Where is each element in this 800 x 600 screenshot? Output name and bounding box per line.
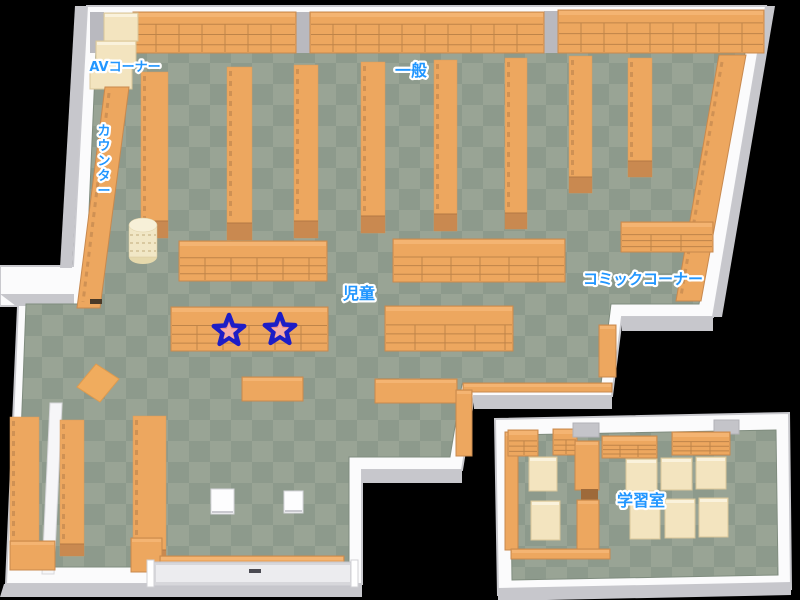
study-doorway (573, 423, 599, 437)
table-top-face (666, 500, 694, 503)
shelf-top-face (673, 433, 729, 437)
shelf-top-face (134, 13, 295, 17)
small-table (284, 491, 303, 513)
study-table (531, 501, 560, 540)
shelf-top-face (180, 242, 326, 246)
study-table (529, 457, 557, 491)
study-table (661, 458, 692, 490)
area-label-children: 児童 (342, 284, 375, 303)
low-shelf (179, 241, 327, 281)
round-rack (129, 218, 157, 264)
low-shelf (385, 306, 513, 351)
area-label-counter: カウンター (97, 124, 110, 199)
table-top-face (627, 460, 656, 463)
wall-bookshelf (558, 10, 764, 53)
wall-bookshelf (310, 12, 544, 53)
shelf-top-face (559, 11, 763, 15)
shelf-top-face (243, 378, 302, 381)
shelf-top-face (394, 240, 564, 244)
shelf-top-face (376, 380, 456, 383)
study-table (699, 498, 728, 537)
study-table (699, 498, 728, 537)
shelf-front-face (361, 216, 385, 233)
wall-shadow-face (622, 317, 713, 331)
table-top-face (530, 458, 556, 461)
area-label-study-room: 学習室 (617, 491, 665, 510)
study-table (696, 457, 726, 489)
study-shelf (672, 432, 730, 455)
shelf-front-face (434, 214, 457, 231)
study-shelf (602, 436, 657, 458)
table-top-face (662, 459, 691, 462)
area-label-comic-corner: コミックコーナー (583, 270, 703, 288)
door-jamb (351, 560, 358, 587)
small-table (211, 489, 234, 514)
low-shelf (179, 241, 327, 281)
wall-pillar (296, 12, 310, 53)
low-shelf-starred (171, 307, 328, 351)
study-table (626, 459, 657, 491)
wall-shelf (456, 390, 472, 456)
wall-pillar (296, 12, 310, 53)
bookshelf-row (10, 417, 39, 560)
shelf-top-face (172, 308, 327, 312)
area-label-general: 一般 (395, 61, 427, 80)
study-baseboard-shelf (511, 549, 610, 559)
comic-shelf (599, 325, 616, 377)
low-shelf (385, 306, 513, 351)
wall-pillar (544, 11, 558, 53)
shelf-top-face (512, 550, 609, 553)
low-shelf (393, 239, 565, 282)
low-shelf (375, 379, 457, 403)
comic-shelf (621, 222, 713, 252)
study-divider-gap (581, 489, 598, 501)
low-shelf (393, 239, 565, 282)
counter-slot (90, 299, 102, 304)
door-handle (249, 569, 261, 573)
shelf-top-face (622, 223, 712, 227)
bookshelf-row (60, 420, 84, 556)
wall-bookshelf (133, 12, 296, 53)
entrance-door (147, 560, 358, 587)
shelf-top-face (457, 391, 471, 394)
bookshelf-row (294, 65, 318, 238)
wall-bookshelf (310, 12, 544, 53)
bookshelf-row (505, 58, 527, 229)
shelf-front-face (60, 544, 84, 556)
shelf-top-face (161, 557, 343, 560)
wall-pillar (544, 11, 558, 53)
low-shelf (242, 377, 303, 401)
corner-shelf (10, 541, 55, 570)
shelf-top-face (464, 384, 611, 387)
bookshelf-row (10, 417, 39, 560)
bookshelf-row (434, 60, 457, 231)
wall-bookshelf (133, 12, 296, 53)
table-top-face (532, 502, 559, 505)
study-table (665, 499, 695, 538)
study-divider-gap (581, 489, 598, 501)
bookshelf-row (569, 56, 592, 193)
study-table (665, 499, 695, 538)
shelf-top-face (603, 437, 656, 441)
study-table (696, 457, 726, 489)
area-label-av-corner: AVコーナー (89, 60, 160, 75)
shelf-front-face (628, 161, 652, 177)
small-table (284, 491, 303, 513)
small-table (211, 489, 234, 514)
bookshelf-row (141, 72, 168, 238)
av-corner-shelf (104, 13, 138, 41)
study-divider-shelf (577, 500, 599, 553)
shelf-top-face (311, 13, 543, 17)
table-top-face (700, 499, 727, 502)
counter-slot (90, 299, 102, 304)
bookshelf-row (361, 62, 385, 233)
study-table (661, 458, 692, 490)
shelf-top-face (576, 442, 598, 445)
study-divider-shelf (577, 500, 599, 553)
library-floor-map: AVコーナーカウンター一般児童コミックコーナー学習室 (0, 0, 800, 600)
av-corner-shelf (104, 13, 138, 41)
table-top-face (697, 458, 725, 461)
shelf-top-face (11, 542, 54, 545)
wall-shelf-strip (463, 383, 612, 392)
wall-shelf (456, 390, 472, 456)
door-jamb (147, 560, 154, 587)
corner-shelf (10, 541, 55, 570)
study-divider-shelf (575, 441, 599, 490)
shelf-top-face (600, 326, 615, 329)
floor-map-canvas: AVコーナーカウンター一般児童コミックコーナー学習室 (0, 0, 800, 600)
shelf-top-face (132, 539, 161, 542)
wall-bookshelf (558, 10, 764, 53)
shelf-front-face (294, 221, 318, 238)
shelf-front-face (227, 223, 252, 240)
wall-shadow-face (362, 470, 462, 483)
study-shelf (508, 430, 538, 456)
study-table (626, 459, 657, 491)
comic-shelf (599, 325, 616, 377)
bookshelf-row (227, 67, 252, 240)
study-divider-shelf (575, 441, 599, 490)
study-table (529, 457, 557, 491)
shelf-top-face (386, 307, 512, 311)
shelf-top-face (578, 501, 598, 504)
bookshelf-row (628, 58, 652, 177)
study-table (531, 501, 560, 540)
shelf-top-face (509, 431, 537, 435)
table-top-face (97, 42, 135, 45)
table-top-face (105, 14, 137, 17)
rack-top (129, 218, 157, 232)
shelf-front-face (569, 177, 592, 193)
shelf-front-face (505, 213, 527, 229)
entrance-floor (156, 565, 350, 582)
study-doorway (573, 423, 599, 437)
wall-shadow-face (474, 396, 612, 409)
